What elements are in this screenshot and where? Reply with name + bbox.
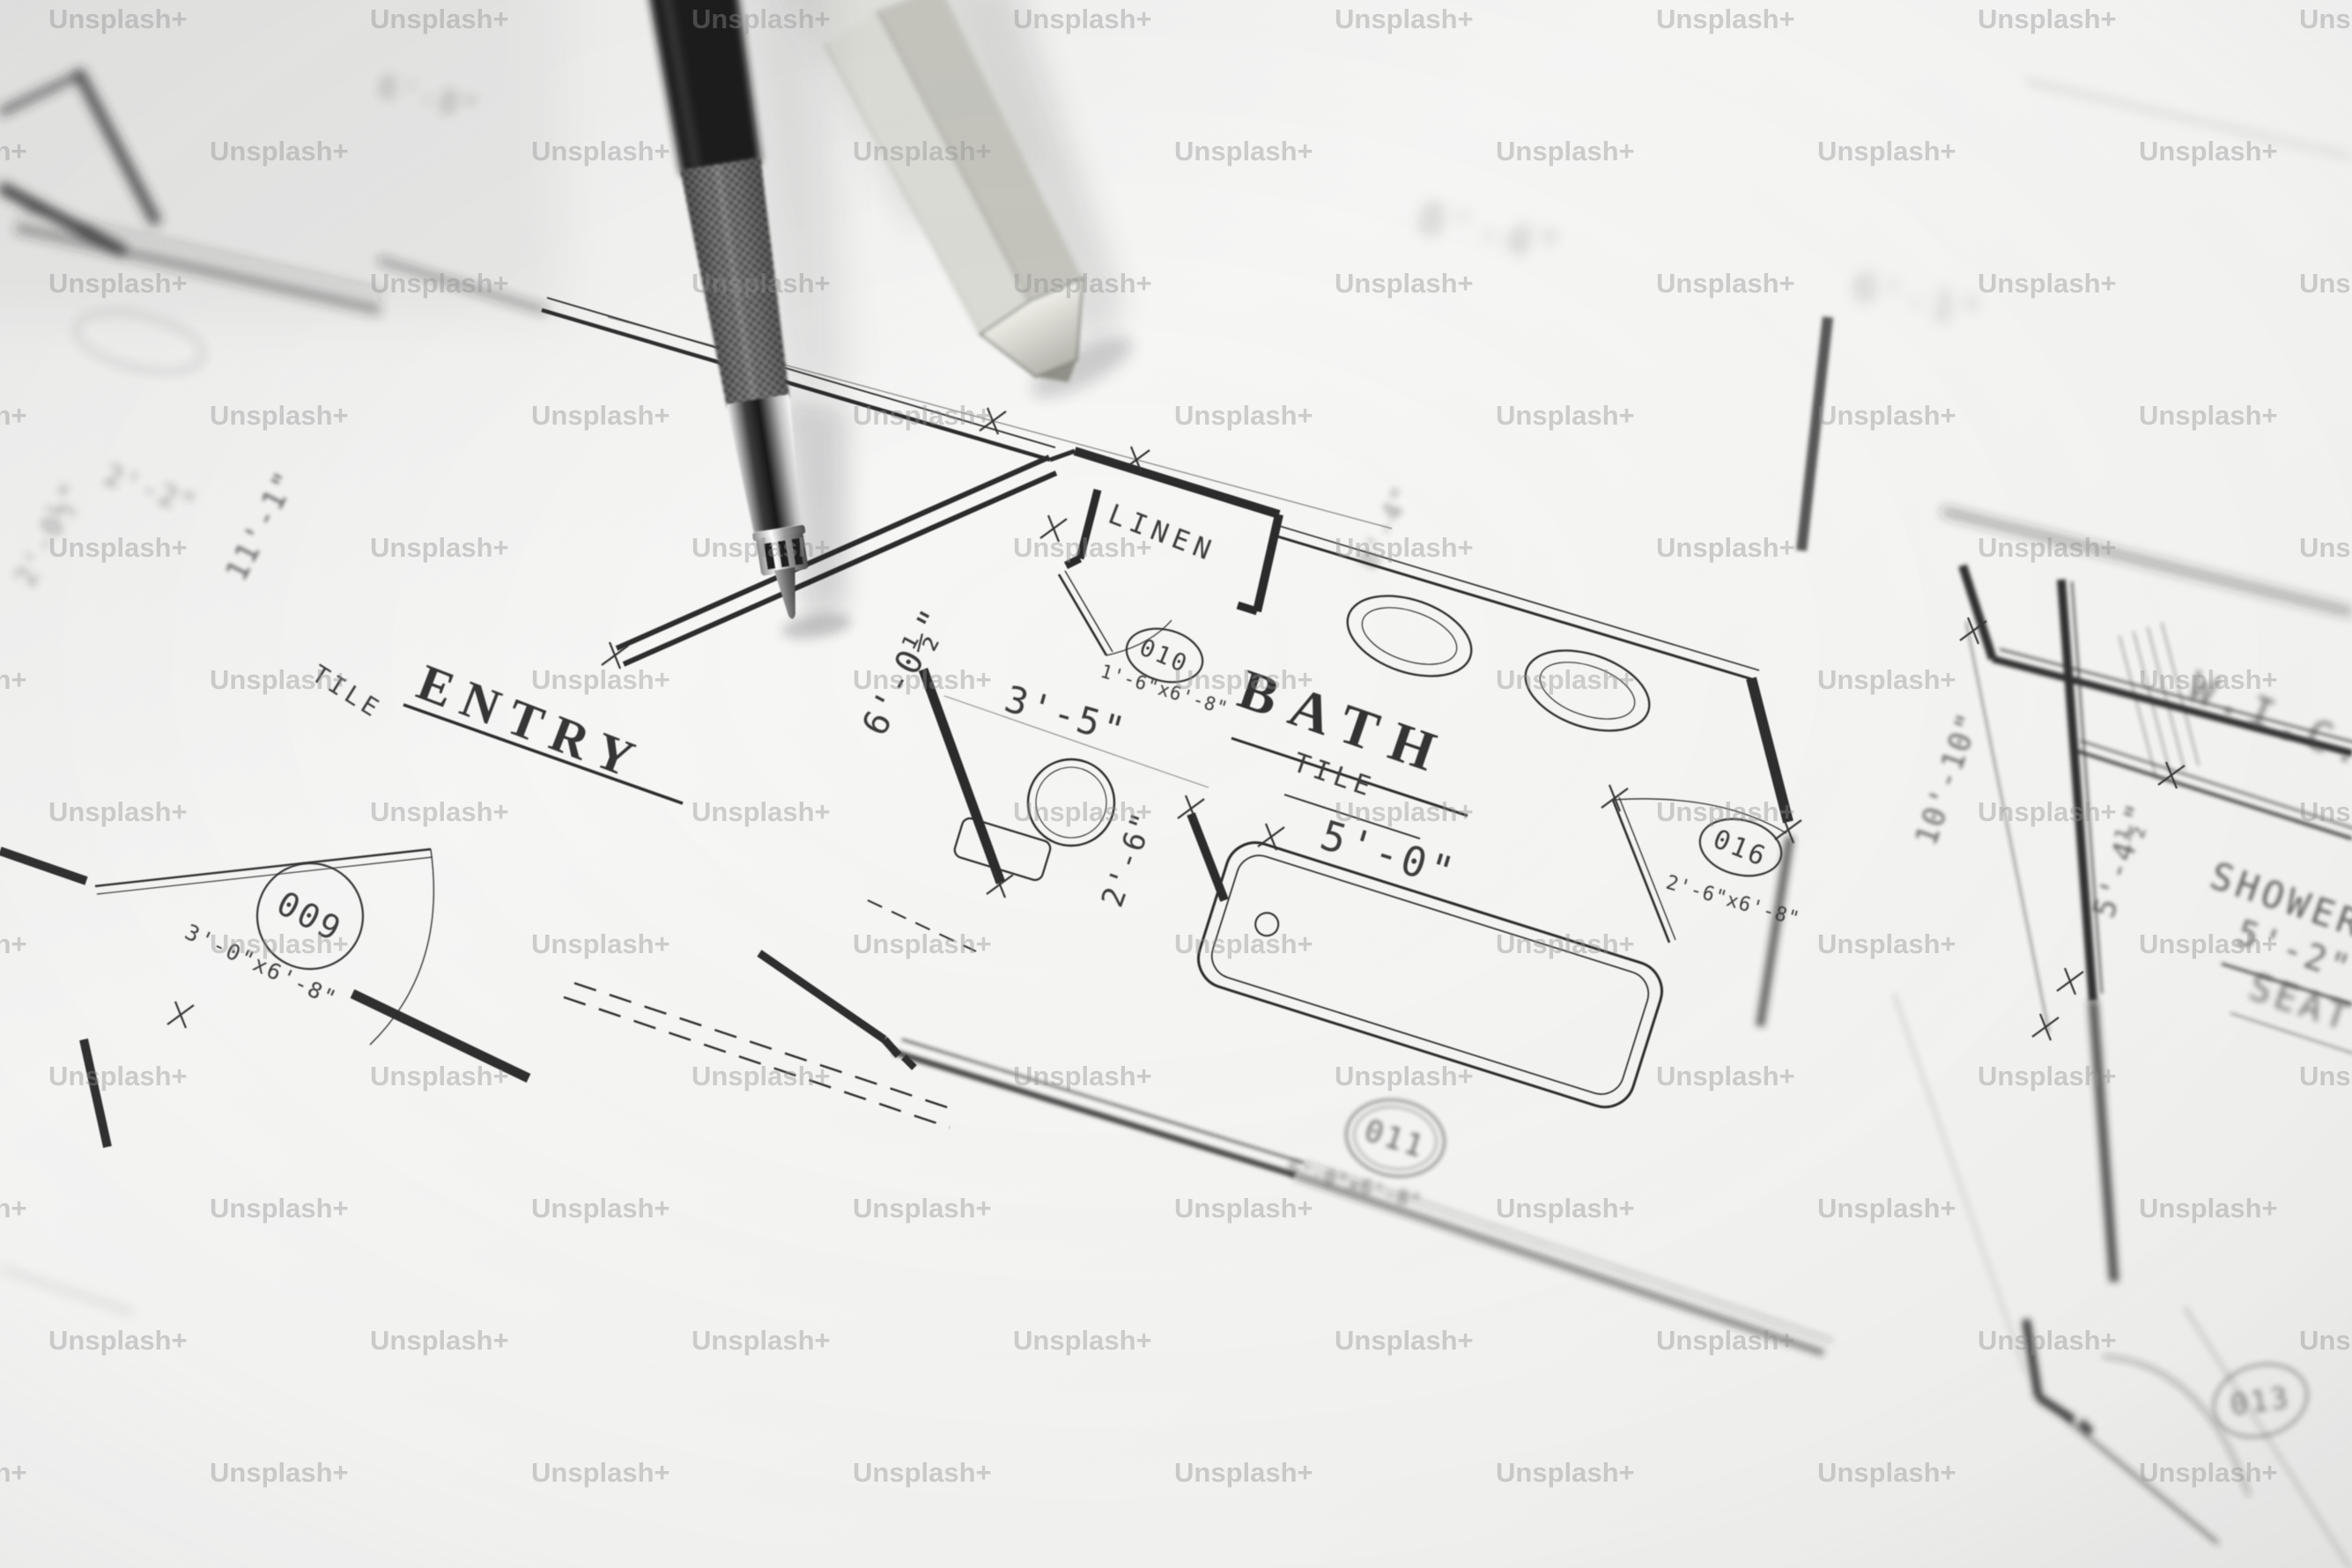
unsplash-watermark: Unsplash+	[0, 1457, 27, 1488]
unsplash-watermark: Unsplash+	[0, 928, 27, 959]
blueprint-photo: 009010011013016 ENTRYTILELINENBATHTILE3'…	[0, 0, 2352, 1568]
unsplash-watermark: Unsplash+	[210, 928, 349, 959]
unsplash-watermark: Unsplash+	[1817, 400, 1956, 431]
unsplash-watermark: Unsplash+	[1656, 532, 1795, 563]
unsplash-watermark: Unsplash+	[0, 400, 27, 431]
unsplash-watermark: Unsplash+	[692, 4, 831, 34]
unsplash-watermark: Unsplash+	[2139, 400, 2278, 431]
unsplash-watermark: Unsplash+	[370, 796, 509, 827]
unsplash-watermark: Unsplash+	[692, 268, 831, 299]
unsplash-watermark: Unsplash+	[531, 664, 670, 695]
unsplash-watermark: Unsplash+	[48, 532, 188, 563]
unsplash-watermark: Unsplash+	[1335, 268, 1474, 299]
unsplash-watermark: Unsplash+	[1817, 136, 1956, 166]
unsplash-watermark: Unsplash+	[1013, 532, 1152, 563]
unsplash-watermark: Unsplash+	[1013, 1061, 1152, 1091]
unsplash-watermark: Unsplash+	[210, 1193, 349, 1224]
unsplash-watermark: Unsplash+	[48, 1061, 188, 1091]
unsplash-watermark: Unsplash+	[2299, 532, 2352, 563]
unsplash-watermark: Unsplash+	[1174, 1193, 1313, 1224]
unsplash-watermark: Unsplash+	[531, 928, 670, 959]
unsplash-watermark: Unsplash+	[2139, 136, 2278, 166]
unsplash-watermark: Unsplash+	[1817, 1457, 1956, 1488]
unsplash-watermark: Unsplash+	[1656, 4, 1795, 34]
unsplash-watermark: Unsplash+	[370, 268, 509, 299]
unsplash-watermark: Unsplash+	[853, 1193, 992, 1224]
unsplash-watermark: Unsplash+	[1174, 136, 1313, 166]
unsplash-watermark: Unsplash+	[1978, 4, 2117, 34]
unsplash-watermark: Unsplash+	[853, 1457, 992, 1488]
unsplash-watermark: Unsplash+	[0, 664, 27, 695]
unsplash-watermark: Unsplash+	[1013, 796, 1152, 827]
unsplash-watermark: Unsplash+	[370, 1061, 509, 1091]
unsplash-watermark: Unsplash+	[1335, 1325, 1474, 1356]
photo-canvas: 009010011013016 ENTRYTILELINENBATHTILE3'…	[0, 0, 2352, 1568]
unsplash-watermark: Unsplash+	[692, 1061, 831, 1091]
unsplash-watermark: Unsplash+	[48, 1325, 188, 1356]
unsplash-watermark: Unsplash+	[1817, 1193, 1956, 1224]
unsplash-watermark: Unsplash+	[2299, 4, 2352, 34]
unsplash-watermark: Unsplash+	[0, 136, 27, 166]
unsplash-watermark: Unsplash+	[210, 664, 349, 695]
unsplash-watermark: Unsplash+	[2139, 1457, 2278, 1488]
unsplash-watermark: Unsplash+	[1978, 796, 2117, 827]
unsplash-watermark: Unsplash+	[2299, 268, 2352, 299]
unsplash-watermark: Unsplash+	[1496, 1193, 1635, 1224]
unsplash-watermark: Unsplash+	[1013, 268, 1152, 299]
unsplash-watermark: Unsplash+	[48, 796, 188, 827]
unsplash-watermark: Unsplash+	[370, 4, 509, 34]
unsplash-watermark: Unsplash+	[1174, 928, 1313, 959]
unsplash-watermark: Unsplash+	[370, 532, 509, 563]
unsplash-watermark: Unsplash+	[853, 136, 992, 166]
unsplash-watermark: Unsplash+	[1656, 796, 1795, 827]
unsplash-watermark: Unsplash+	[1335, 532, 1474, 563]
unsplash-watermark: Unsplash+	[1978, 268, 2117, 299]
unsplash-watermark: Unsplash+	[692, 532, 831, 563]
unsplash-watermark: Unsplash+	[2299, 1325, 2352, 1356]
unsplash-watermark: Unsplash+	[0, 1193, 27, 1224]
unsplash-watermark: Unsplash+	[692, 1325, 831, 1356]
unsplash-watermark: Unsplash+	[2139, 664, 2278, 695]
unsplash-watermark: Unsplash+	[1978, 1061, 2117, 1091]
unsplash-watermark: Unsplash+	[531, 1457, 670, 1488]
unsplash-watermark: Unsplash+	[531, 136, 670, 166]
unsplash-watermark: Unsplash+	[1496, 664, 1635, 695]
unsplash-watermark: Unsplash+	[1496, 400, 1635, 431]
unsplash-watermark: Unsplash+	[1335, 1061, 1474, 1091]
unsplash-watermark: Unsplash+	[853, 928, 992, 959]
unsplash-watermark: Unsplash+	[48, 4, 188, 34]
unsplash-watermark: Unsplash+	[1656, 1325, 1795, 1356]
unsplash-watermark: Unsplash+	[1978, 532, 2117, 563]
unsplash-watermark: Unsplash+	[210, 136, 349, 166]
unsplash-watermark: Unsplash+	[1656, 1061, 1795, 1091]
unsplash-watermark: Unsplash+	[1817, 664, 1956, 695]
unsplash-watermark: Unsplash+	[1013, 4, 1152, 34]
unsplash-watermark: Unsplash+	[1335, 796, 1474, 827]
unsplash-watermark: Unsplash+	[1335, 4, 1474, 34]
unsplash-watermark: Unsplash+	[1174, 1457, 1313, 1488]
unsplash-watermark: Unsplash+	[531, 1193, 670, 1224]
unsplash-watermark: Unsplash+	[2299, 1061, 2352, 1091]
unsplash-watermark: Unsplash+	[692, 796, 831, 827]
unsplash-watermark: Unsplash+	[210, 1457, 349, 1488]
unsplash-watermark: Unsplash+	[853, 400, 992, 431]
unsplash-watermark: Unsplash+	[2139, 1193, 2278, 1224]
unsplash-watermark: Unsplash+	[531, 400, 670, 431]
unsplash-watermark: Unsplash+	[1978, 1325, 2117, 1356]
unsplash-watermark: Unsplash+	[1656, 268, 1795, 299]
unsplash-watermark: Unsplash+	[370, 1325, 509, 1356]
unsplash-watermark: Unsplash+	[1174, 664, 1313, 695]
unsplash-watermark: Unsplash+	[1496, 136, 1635, 166]
unsplash-watermark: Unsplash+	[1496, 1457, 1635, 1488]
unsplash-watermark: Unsplash+	[1496, 928, 1635, 959]
unsplash-watermark: Unsplash+	[1013, 1325, 1152, 1356]
unsplash-watermark: Unsplash+	[210, 400, 349, 431]
unsplash-watermark: Unsplash+	[2139, 928, 2278, 959]
unsplash-watermark: Unsplash+	[1817, 928, 1956, 959]
unsplash-watermark: Unsplash+	[1174, 400, 1313, 431]
unsplash-watermark: Unsplash+	[2299, 796, 2352, 827]
unsplash-watermark: Unsplash+	[853, 664, 992, 695]
unsplash-watermark: Unsplash+	[48, 268, 188, 299]
